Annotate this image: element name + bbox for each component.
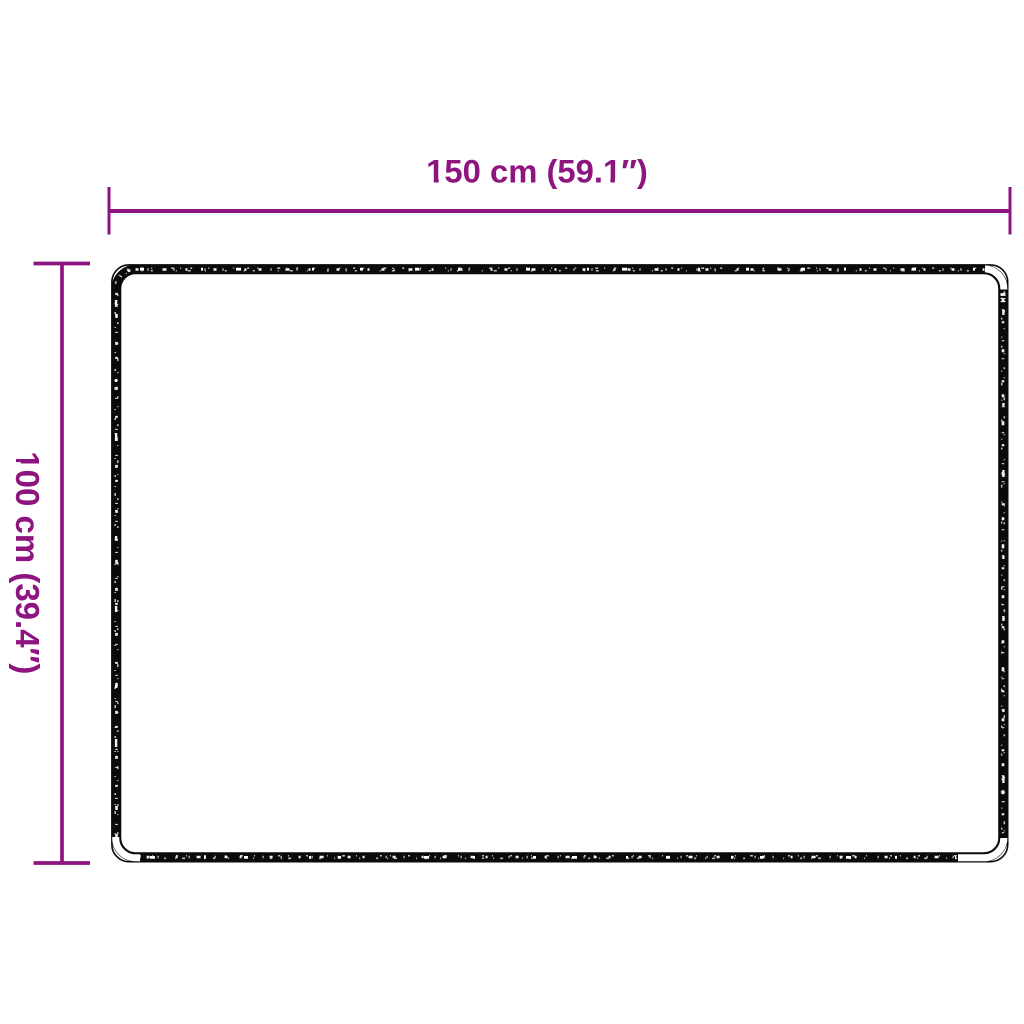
svg-text:150 cm (59.1″): 150 cm (59.1″) bbox=[426, 153, 648, 190]
svg-text:100 cm (39.4″): 100 cm (39.4″) bbox=[9, 451, 46, 674]
